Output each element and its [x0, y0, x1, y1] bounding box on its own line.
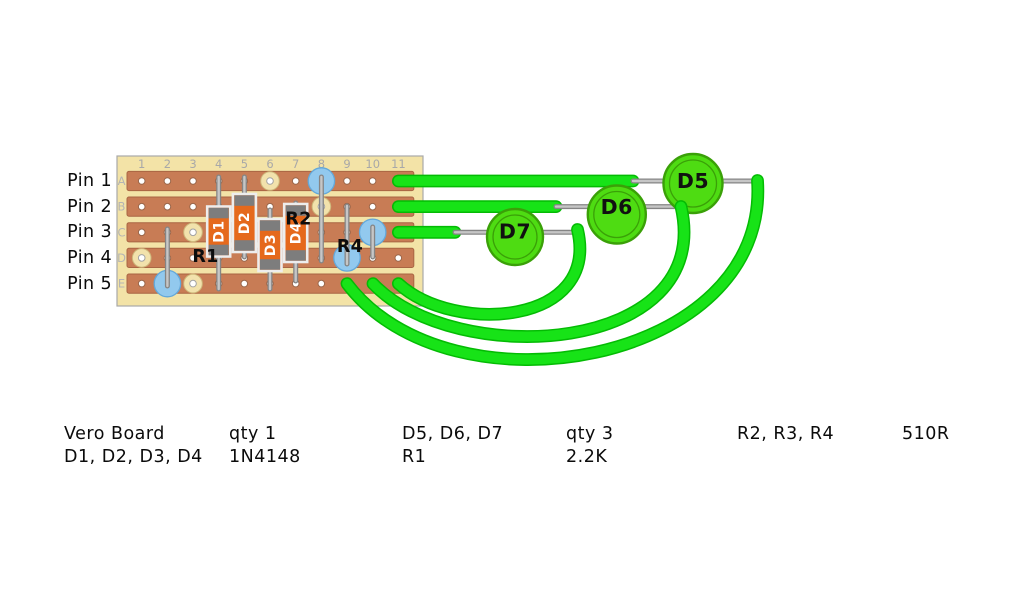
led-d6: D6 [588, 186, 646, 244]
diode-d2-label: D2 [237, 212, 253, 234]
resistor-r1-label: R1 [192, 247, 218, 267]
col-number: 9 [343, 157, 350, 171]
pad-a6 [261, 172, 280, 191]
led-d7: D7 [487, 209, 543, 265]
strip-hole [369, 178, 376, 185]
diode-band-top [209, 208, 229, 219]
diode-d3-label: D3 [263, 234, 279, 256]
vero-layout-diagram: Pin 1 Pin 2 Pin 3 Pin 4 Pin 5 Vero Board… [0, 0, 1024, 603]
pad-hole [190, 280, 197, 287]
strip-hole [190, 178, 197, 185]
col-number: 6 [266, 157, 273, 171]
row-letter: C [117, 225, 125, 239]
diode-band-top [260, 220, 280, 231]
strip-hole [318, 280, 325, 287]
strip-hole [344, 178, 351, 185]
led-d7-label: D7 [499, 220, 531, 244]
pad-c3 [184, 223, 203, 242]
diode-d3: D3 [259, 219, 282, 271]
strip-hole [164, 203, 171, 210]
diode-band-top [234, 195, 254, 206]
pad-hole [190, 229, 197, 236]
diode-band-bottom [286, 250, 306, 261]
diode-d2: D2 [233, 194, 256, 252]
strip-hole [138, 203, 145, 210]
col-number: 10 [365, 157, 380, 171]
led-d5: D5 [664, 154, 723, 213]
strip-hole [138, 280, 145, 287]
strip-hole [138, 178, 145, 185]
pad-hole [138, 255, 145, 262]
col-number: 5 [241, 157, 248, 171]
col-number: 4 [215, 157, 222, 171]
col-number: 3 [189, 157, 196, 171]
diode-d1-label: D1 [212, 220, 228, 242]
resistor-r4-label: R4 [337, 237, 363, 257]
diode-band-bottom [234, 240, 254, 251]
pad-d1 [132, 249, 151, 268]
pad-e3 [184, 274, 203, 293]
strip-hole [190, 203, 197, 210]
col-number: 11 [391, 157, 406, 171]
diode-band-bottom [260, 259, 280, 270]
col-number: 7 [292, 157, 299, 171]
strip-hole [241, 280, 248, 287]
strip-hole [395, 255, 402, 262]
col-number: 1 [138, 157, 145, 171]
led-d5-label: D5 [677, 169, 709, 193]
pad-hole [267, 178, 274, 185]
strip-hole [369, 203, 376, 210]
strip-hole [164, 178, 171, 185]
strip-hole [138, 229, 145, 236]
row-letter: B [118, 200, 126, 214]
led-d6-label: D6 [601, 195, 633, 219]
strip-hole [292, 178, 299, 185]
circuit-canvas: 1 2 3 4 5 6 7 8 9 10 11 A B C D E [0, 0, 1024, 603]
row-letter: A [118, 174, 126, 188]
resistor-r2-label: R2 [285, 210, 311, 230]
row-letter: E [118, 277, 125, 291]
row-letter: D [117, 251, 126, 265]
col-number: 2 [164, 157, 171, 171]
